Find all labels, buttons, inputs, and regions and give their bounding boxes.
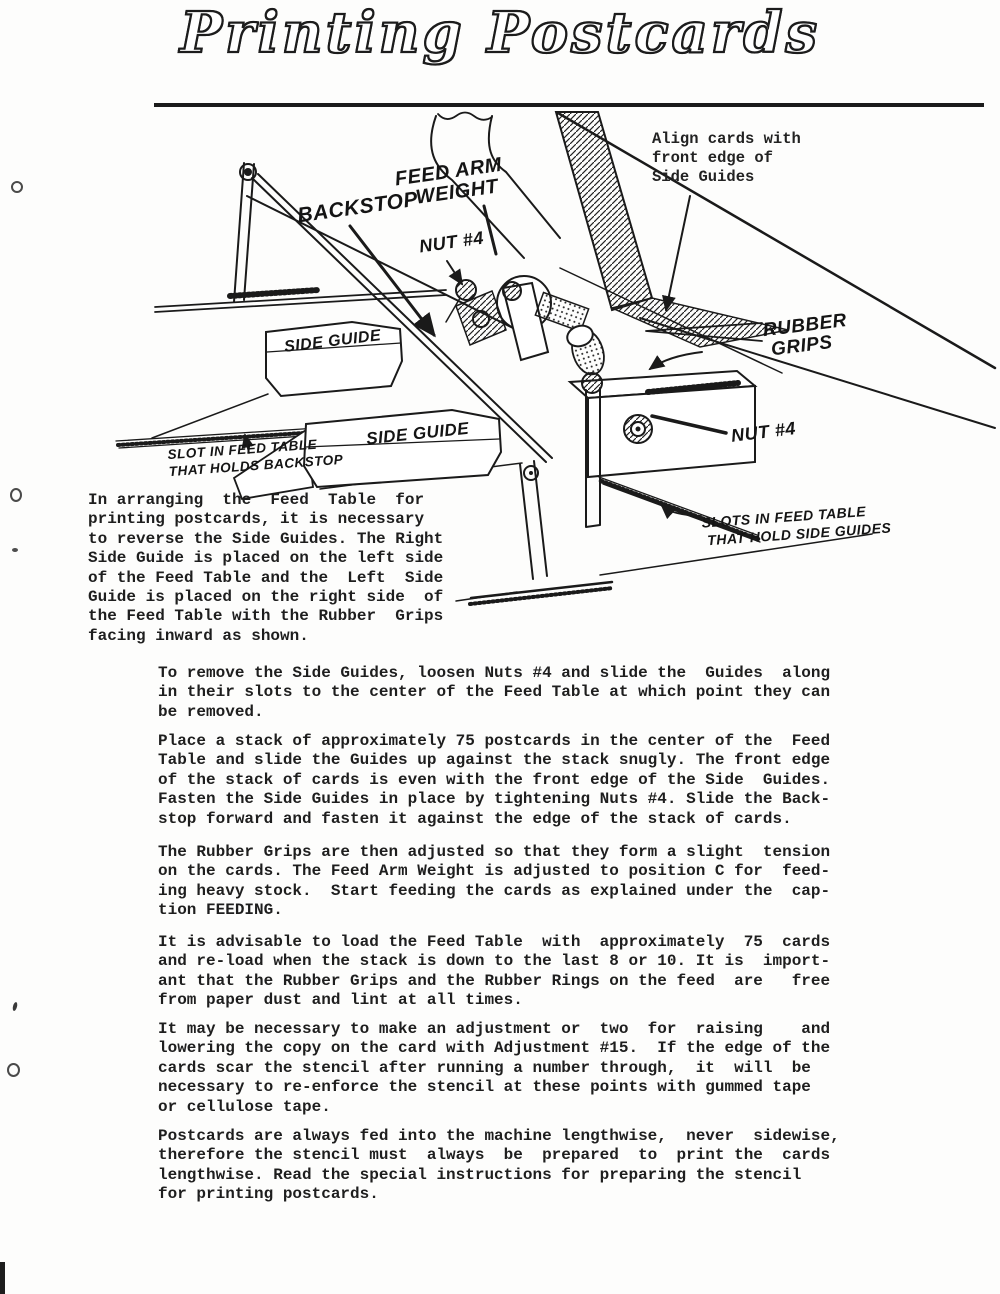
scan-mark-bottom-left — [0, 1262, 5, 1294]
scanned-manual-page: { "page": { "title": "Printing Postcards… — [0, 0, 1000, 1294]
page-title: Printing Postcards — [0, 0, 1000, 66]
scan-speck-3 — [12, 548, 18, 552]
title-underline — [154, 103, 984, 107]
body-paragraph-4: It is advisable to load the Feed Table w… — [158, 933, 830, 1011]
note-align-cards: Align cards with front edge of Side Guid… — [652, 130, 801, 187]
scan-speck-5 — [7, 1063, 20, 1077]
body-paragraph-1: To remove the Side Guides, loosen Nuts #… — [158, 664, 830, 722]
scan-speck-2 — [10, 488, 22, 502]
body-paragraph-2: Place a stack of approximately 75 postca… — [158, 732, 830, 829]
body-paragraph-6: Postcards are always fed into the machin… — [158, 1127, 840, 1205]
intro-paragraph: In arranging the Feed Table for printing… — [88, 491, 443, 646]
scan-speck-4 — [12, 1002, 18, 1012]
body-paragraph-5: It may be necessary to make an adjustmen… — [158, 1020, 830, 1117]
scan-speck-1 — [11, 181, 23, 193]
body-paragraph-3: The Rubber Grips are then adjusted so th… — [158, 843, 830, 921]
